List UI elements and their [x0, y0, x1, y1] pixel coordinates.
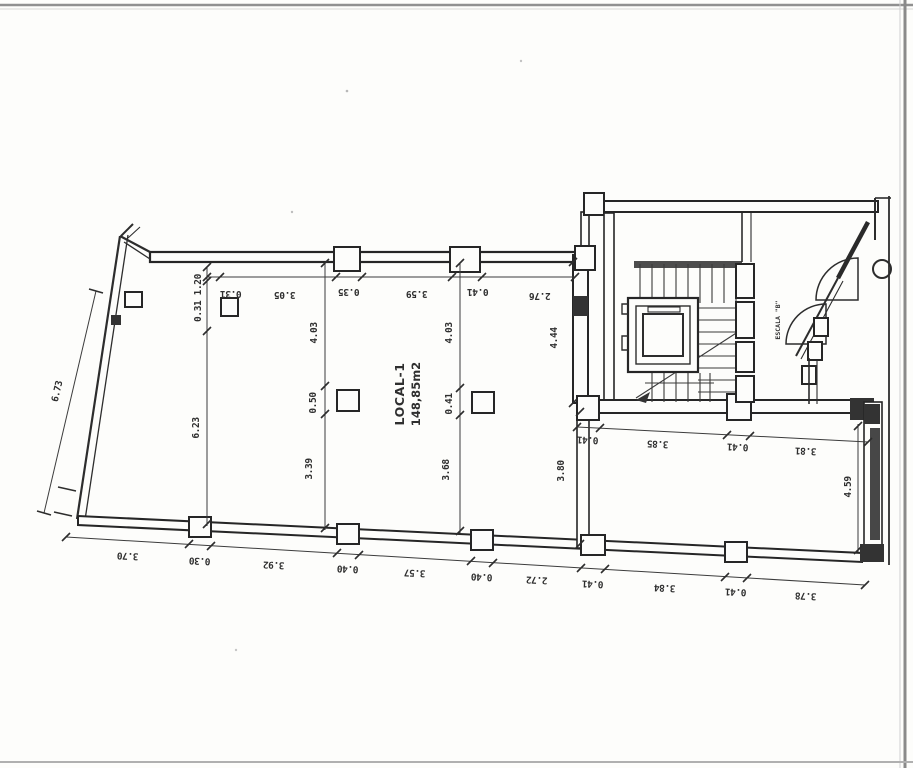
dim-label: 2.72	[526, 573, 548, 585]
pilaster	[870, 428, 880, 540]
column	[472, 392, 494, 413]
floor-plan-drawing: LOCAL-1 148,85m2 ESCALA "B" 0.31 3.05 0.…	[0, 0, 913, 768]
entry-doors	[786, 222, 868, 404]
column	[337, 390, 359, 411]
stair-treads-lower	[645, 373, 714, 402]
dim-label: 0.31 1.20	[193, 273, 204, 322]
dim-label: 4.03	[309, 322, 320, 344]
stairwell-left-wall	[604, 213, 614, 403]
dim-label: 3.05	[274, 289, 296, 300]
room-area-label: 148,85m2	[409, 362, 423, 426]
left-wall-outer	[77, 236, 120, 519]
stair-treads-right	[698, 308, 740, 392]
pilaster	[864, 404, 880, 424]
column	[189, 517, 211, 537]
dim-label: 0.41	[576, 433, 599, 445]
scan-speckle	[235, 649, 237, 651]
column	[575, 246, 595, 270]
dim-label: 6.73	[50, 379, 66, 403]
left-wall-stub-inner	[128, 227, 140, 238]
dim-label: 0.40	[336, 562, 359, 574]
dim-label: 6.23	[191, 417, 202, 439]
left-wall-column-filled	[111, 315, 121, 325]
dim-label: 2.76	[529, 290, 551, 301]
stairwell-pilaster	[736, 342, 754, 372]
dim-label: 3.80	[556, 460, 567, 482]
dim-label: 0.41	[444, 393, 455, 415]
door-jamb-block	[814, 318, 828, 336]
column	[334, 247, 360, 271]
room-name-label: LOCAL-1	[392, 362, 407, 425]
stairwell-pilaster	[736, 264, 754, 298]
pilaster	[860, 544, 884, 562]
scan-artifacts	[0, 0, 913, 768]
left-wall-jog	[125, 292, 142, 307]
top-wall	[150, 252, 588, 262]
dim-label: 3.59	[406, 288, 428, 299]
scan-speckle	[346, 90, 349, 93]
dim-label: 0.41	[467, 286, 489, 297]
floor-plan-document: LOCAL-1 148,85m2 ESCALA "B" 0.31 3.05 0.…	[0, 0, 913, 768]
scan-speckle	[520, 60, 522, 62]
dim-label: 3.85	[646, 437, 669, 449]
dim-label: 0.50	[308, 392, 319, 414]
dim-label: 0.41	[726, 440, 749, 452]
column	[221, 298, 238, 316]
dim-label: 0.40	[470, 570, 493, 582]
column	[471, 530, 493, 550]
dim-label: 3.92	[263, 558, 285, 570]
diagonal-wall-thick	[838, 222, 868, 278]
stair-name-label: ESCALA "B"	[774, 300, 782, 339]
dim-label: 4.03	[444, 322, 455, 344]
stair-block-top-wall	[588, 201, 878, 212]
column	[584, 193, 604, 215]
dim-label: 0.31	[220, 288, 242, 299]
dim-label: 3.84	[653, 581, 676, 593]
dim-label: 3.78	[794, 589, 817, 601]
column	[337, 524, 359, 544]
dim-label: 3.57	[404, 566, 426, 578]
dim-label: 3.68	[441, 459, 452, 481]
dim-label: 0.30	[188, 554, 211, 566]
dim-label: 3.81	[794, 444, 817, 456]
stairwell-pilaster	[736, 302, 754, 338]
stairwell-pilaster	[736, 376, 754, 402]
stair-block	[575, 193, 891, 565]
dim-label: 0.41	[724, 585, 747, 597]
door-jamb-block	[808, 342, 822, 360]
door-hinge-block	[573, 296, 588, 316]
dim-label: 4.44	[549, 327, 560, 349]
column	[581, 535, 605, 555]
right-room-dim-line	[577, 427, 868, 442]
dim-label: 3.39	[304, 458, 315, 480]
column	[577, 396, 599, 420]
left-wall-window-line	[54, 512, 72, 516]
dim-label: 3.70	[116, 549, 139, 561]
left-wall-inner	[85, 235, 128, 520]
left-wall-stub	[121, 224, 133, 236]
dim-label: 4.59	[843, 476, 854, 498]
dim-label: 0.41	[581, 577, 604, 589]
scan-speckle	[291, 211, 293, 213]
column	[725, 542, 747, 562]
dim-label: 0.35	[338, 286, 360, 297]
elevator-shaft-outer	[628, 298, 698, 372]
elevator-shaft	[622, 298, 698, 372]
column	[450, 247, 480, 272]
left-wall-window-line	[58, 487, 76, 491]
